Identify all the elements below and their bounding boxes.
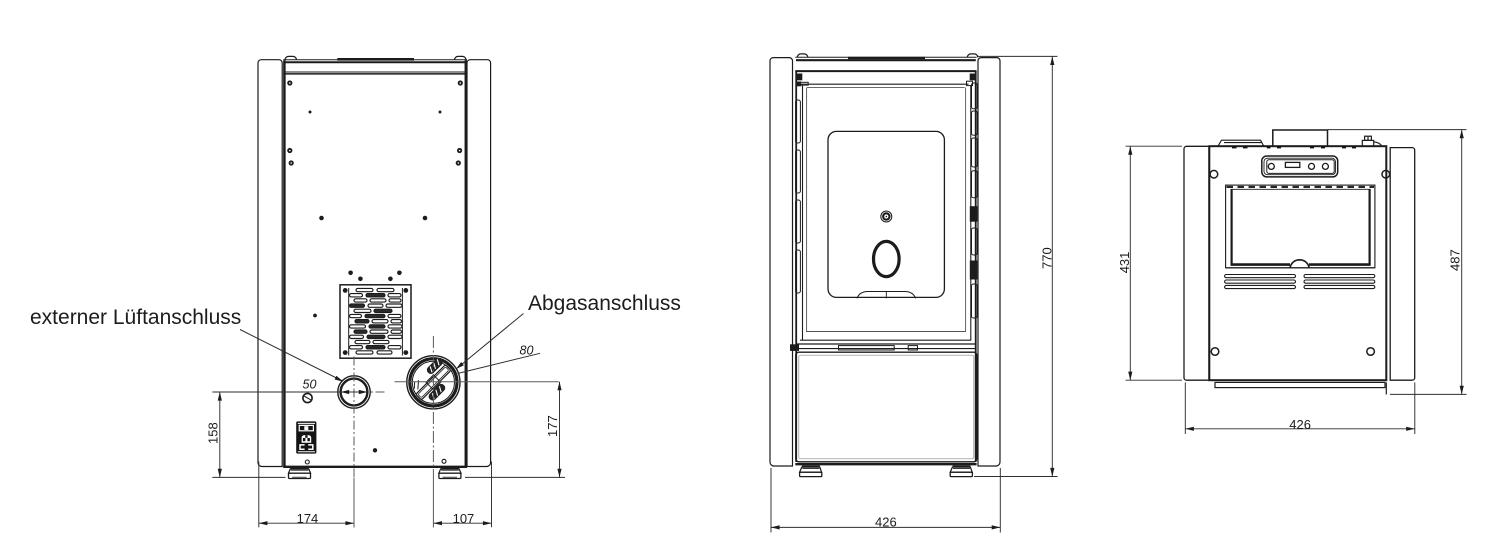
svg-text:107: 107	[453, 511, 475, 526]
svg-text:431: 431	[1117, 252, 1132, 274]
svg-text:Abgasanschluss: Abgasanschluss	[528, 292, 681, 315]
svg-text:externer Lüftanschluss: externer Lüftanschluss	[30, 306, 241, 329]
svg-text:770: 770	[1039, 247, 1054, 269]
svg-text:158: 158	[206, 422, 221, 444]
svg-text:50: 50	[303, 378, 317, 392]
svg-text:426: 426	[875, 514, 897, 529]
svg-text:177: 177	[545, 415, 560, 437]
svg-text:80: 80	[520, 344, 534, 358]
svg-text:487: 487	[1447, 249, 1462, 271]
svg-text:426: 426	[1289, 417, 1311, 432]
svg-text:174: 174	[297, 511, 319, 526]
